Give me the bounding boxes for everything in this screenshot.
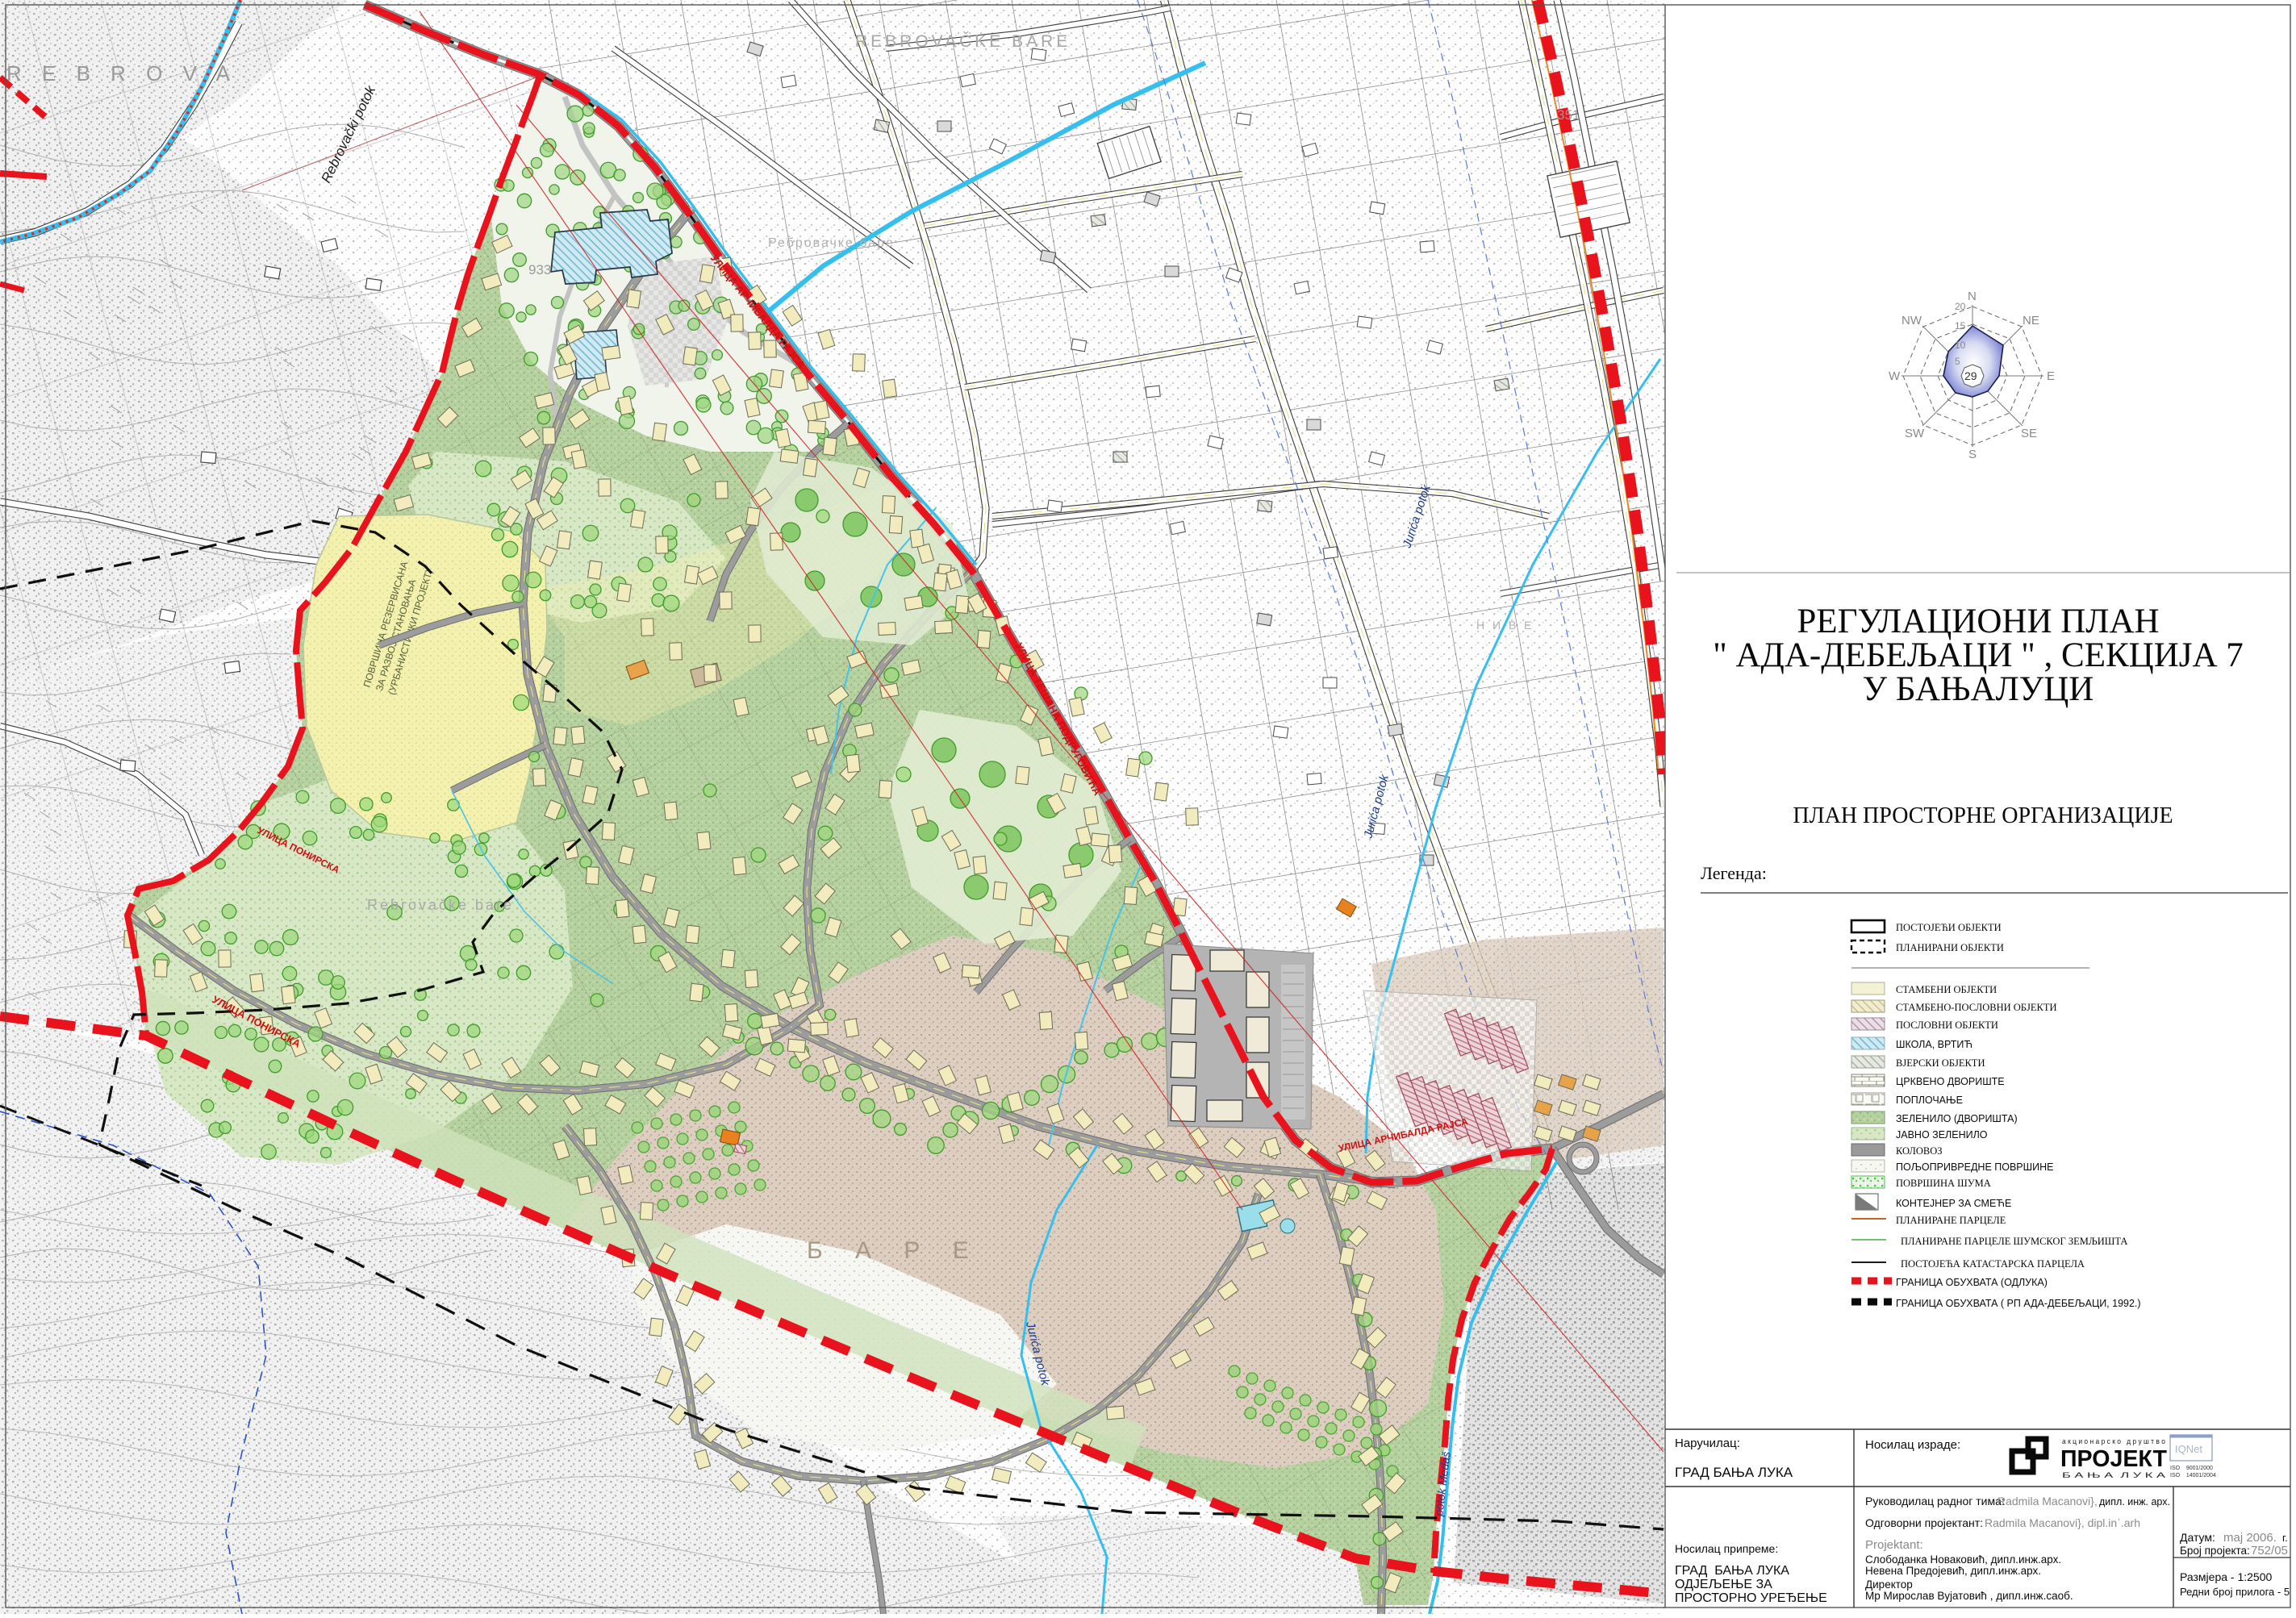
- svg-text:SW: SW: [1905, 427, 1925, 440]
- svg-text:СТАМБЕНО-ПОСЛОВНИ ОБЈЕКТИ: СТАМБЕНО-ПОСЛОВНИ ОБЈЕКТИ: [1896, 1002, 2056, 1013]
- svg-text:20: 20: [1955, 301, 1966, 312]
- svg-text:Број пројекта:: Број пројекта:: [2180, 1545, 2250, 1557]
- svg-text:г.: г.: [2282, 1532, 2288, 1544]
- svg-text:Radmila Macanovi}, dipl.inˈ.a: Radmila Macanovi}, dipl.inˈ.arh: [1985, 1516, 2140, 1529]
- svg-text:" АДА-ДЕБЕЉАЦИ " , СЕКЦИЈА 7: " АДА-ДЕБЕЉАЦИ " , СЕКЦИЈА 7: [1713, 636, 2244, 674]
- svg-text:ПОПЛОЧАЊЕ: ПОПЛОЧАЊЕ: [1896, 1095, 1963, 1106]
- svg-text:ISO 9001/2000: ISO 9001/2000: [2170, 1466, 2213, 1471]
- svg-text:R E B R O V A: R E B R O V A: [6, 61, 237, 85]
- svg-text:Б А Р Е: Б А Р Е: [807, 1237, 982, 1264]
- svg-text:ПЛАН ПРОСТОРНЕ ОРГАНИЗАЦИЈЕ: ПЛАН ПРОСТОРНЕ ОРГАНИЗАЦИЈЕ: [1793, 803, 2173, 828]
- svg-text:Одговорни пројектант:: Одговорни пројектант:: [1865, 1516, 1983, 1529]
- svg-text:ПОСЛОВНИ ОБЈЕКТИ: ПОСЛОВНИ ОБЈЕКТИ: [1896, 1020, 1998, 1031]
- svg-text:ПЛАНИРАНЕ ПАРЦЕЛЕ ШУМСКОГ ЗЕМЉ: ПЛАНИРАНЕ ПАРЦЕЛЕ ШУМСКОГ ЗЕМЉИШТА: [1901, 1236, 2127, 1247]
- svg-text:S: S: [1968, 448, 1977, 461]
- svg-text:Носилац припреме:: Носилац припреме:: [1675, 1542, 1778, 1555]
- svg-text:10: 10: [1955, 340, 1966, 351]
- svg-text:W: W: [1889, 369, 1901, 383]
- svg-text:ШКОЛА, ВРТИЋ: ШКОЛА, ВРТИЋ: [1896, 1039, 1972, 1050]
- svg-text:Руководилац радног тима:: Руководилац радног тима:: [1865, 1495, 2005, 1507]
- svg-text:Размјера - 1:2500: Размјера - 1:2500: [2180, 1570, 2272, 1583]
- svg-text:ISO 14001/2004: ISO 14001/2004: [2170, 1473, 2216, 1478]
- svg-text:Наручилац:: Наручилац:: [1675, 1437, 1740, 1450]
- svg-text:а к ц и о н а р с к о д р у: а к ц и о н а р с к о д р у ш т в о: [2062, 1437, 2165, 1446]
- svg-text:ВЈЕРСКИ ОБЈЕКТИ: ВЈЕРСКИ ОБЈЕКТИ: [1896, 1057, 1985, 1069]
- svg-text:ПРОСТОРНО УРЕЂЕЊЕ: ПРОСТОРНО УРЕЂЕЊЕ: [1675, 1591, 1827, 1605]
- svg-text:дипл. инж. арх.: дипл. инж. арх.: [2099, 1496, 2170, 1507]
- svg-text:ЗЕЛЕНИЛО (ДВОРИШТА): ЗЕЛЕНИЛО (ДВОРИШТА): [1896, 1113, 2018, 1124]
- svg-text:ПОЉОПРИВРЕДНЕ ПОВРШИНЕ: ПОЉОПРИВРЕДНЕ ПОВРШИНЕ: [1896, 1161, 2053, 1173]
- svg-text:Rebrovačke bare: Rebrovačke bare: [367, 897, 514, 913]
- svg-text:КОЛОВОЗ: КОЛОВОЗ: [1896, 1145, 1943, 1157]
- svg-text:Мр Мирослав Вујатовић , дипл.и: Мр Мирослав Вујатовић , дипл.инж.саоб.: [1865, 1590, 2073, 1602]
- svg-text:Ребровачке баре: Ребровачке баре: [768, 236, 895, 250]
- svg-text:15: 15: [1955, 320, 1966, 332]
- svg-text:ГРАНИЦА ОБУХВАТА ( РП АДА-ДЕБЕ: ГРАНИЦА ОБУХВАТА ( РП АДА-ДЕБЕЉАЦИ, 1992…: [1896, 1298, 2141, 1309]
- svg-text:ЦРКВЕНО ДВОРИШТЕ: ЦРКВЕНО ДВОРИШТЕ: [1896, 1076, 2005, 1087]
- svg-text:Директор: Директор: [1865, 1578, 1913, 1591]
- svg-text:КОНТЕЈНЕР ЗА СМЕЋЕ: КОНТЕЈНЕР ЗА СМЕЋЕ: [1896, 1198, 2011, 1209]
- svg-text:Легенда:: Легенда:: [1701, 863, 1767, 883]
- svg-text:REBROVAČKE BARE: REBROVAČKE BARE: [855, 32, 1071, 51]
- svg-text:5: 5: [1955, 356, 1960, 367]
- svg-text:ГРАНИЦА ОБУХВАТА (ОДЛУКА): ГРАНИЦА ОБУХВАТА (ОДЛУКА): [1896, 1277, 2048, 1288]
- svg-text:СТАМБЕНИ ОБЈЕКТИ: СТАМБЕНИ ОБЈЕКТИ: [1896, 984, 1997, 995]
- svg-text:ЈАВНО ЗЕЛЕНИЛО: ЈАВНО ЗЕЛЕНИЛО: [1896, 1129, 1988, 1141]
- svg-text:Носилац израде:: Носилац израде:: [1865, 1438, 1960, 1452]
- svg-text:SE: SE: [2021, 427, 2037, 440]
- svg-text:Редни број прилога - 5: Редни број прилога - 5: [2180, 1586, 2290, 1598]
- svg-text:ПЛАНИРАНИ ОБЈЕКТИ: ПЛАНИРАНИ ОБЈЕКТИ: [1896, 942, 2004, 953]
- svg-text:ОДЈЕЉЕЊЕ ЗА: ОДЈЕЉЕЊЕ ЗА: [1675, 1578, 1772, 1591]
- svg-text:933: 933: [528, 262, 551, 277]
- svg-text:Невена Предојевић, дипл.инж.ар: Невена Предојевић, дипл.инж.арх.: [1865, 1565, 2041, 1577]
- svg-text:Н И В Е: Н И В Е: [1476, 619, 1534, 632]
- svg-text:ПОВРШИНА ШУМА: ПОВРШИНА ШУМА: [1896, 1178, 1991, 1189]
- svg-text:752/05: 752/05: [2251, 1544, 2288, 1558]
- svg-text:Radmila Macanovi},: Radmila Macanovi},: [1998, 1495, 2098, 1507]
- svg-text:29: 29: [1964, 369, 1977, 382]
- svg-text:ГРАД БАЊА ЛУКА: ГРАД БАЊА ЛУКА: [1675, 1465, 1793, 1480]
- svg-text:E: E: [2047, 369, 2055, 383]
- svg-text:Слободанка Новаковић, дипл.инж: Слободанка Новаковић, дипл.инж.арх.: [1865, 1553, 2061, 1566]
- svg-text:ПОСТОЈЕЋИ ОБЈЕКТИ: ПОСТОЈЕЋИ ОБЈЕКТИ: [1896, 922, 2002, 933]
- svg-text:ПЛАНИРАНЕ ПАРЦЕЛЕ: ПЛАНИРАНЕ ПАРЦЕЛЕ: [1896, 1215, 2006, 1226]
- svg-text:РЕГУЛАЦИОНИ ПЛАН: РЕГУЛАЦИОНИ ПЛАН: [1797, 603, 2159, 640]
- svg-text:ГРАД БАЊА ЛУКА: ГРАД БАЊА ЛУКА: [1675, 1564, 1789, 1578]
- svg-text:351: 351: [1557, 107, 1580, 123]
- svg-text:maj 2006.: maj 2006.: [2223, 1531, 2277, 1545]
- svg-text:IQNet: IQNet: [2175, 1443, 2202, 1455]
- svg-text:ПРОЈЕКТ: ПРОЈЕКТ: [2060, 1446, 2167, 1472]
- svg-text:Датум:: Датум:: [2180, 1531, 2215, 1544]
- svg-text:NE: NE: [2023, 314, 2039, 327]
- svg-text:У БАЊАЛУЦИ: У БАЊАЛУЦИ: [1863, 670, 2094, 708]
- svg-text:Projektant:: Projektant:: [1865, 1538, 1923, 1552]
- svg-text:Б А Њ А Л У К А: Б А Њ А Л У К А: [2062, 1471, 2165, 1479]
- svg-text:ПОСТОЈЕЋА КАТАСТАРСКА ПАРЦЕЛА: ПОСТОЈЕЋА КАТАСТАРСКА ПАРЦЕЛА: [1901, 1258, 2085, 1270]
- svg-text:NW: NW: [1902, 314, 1922, 327]
- svg-text:N: N: [1968, 290, 1977, 303]
